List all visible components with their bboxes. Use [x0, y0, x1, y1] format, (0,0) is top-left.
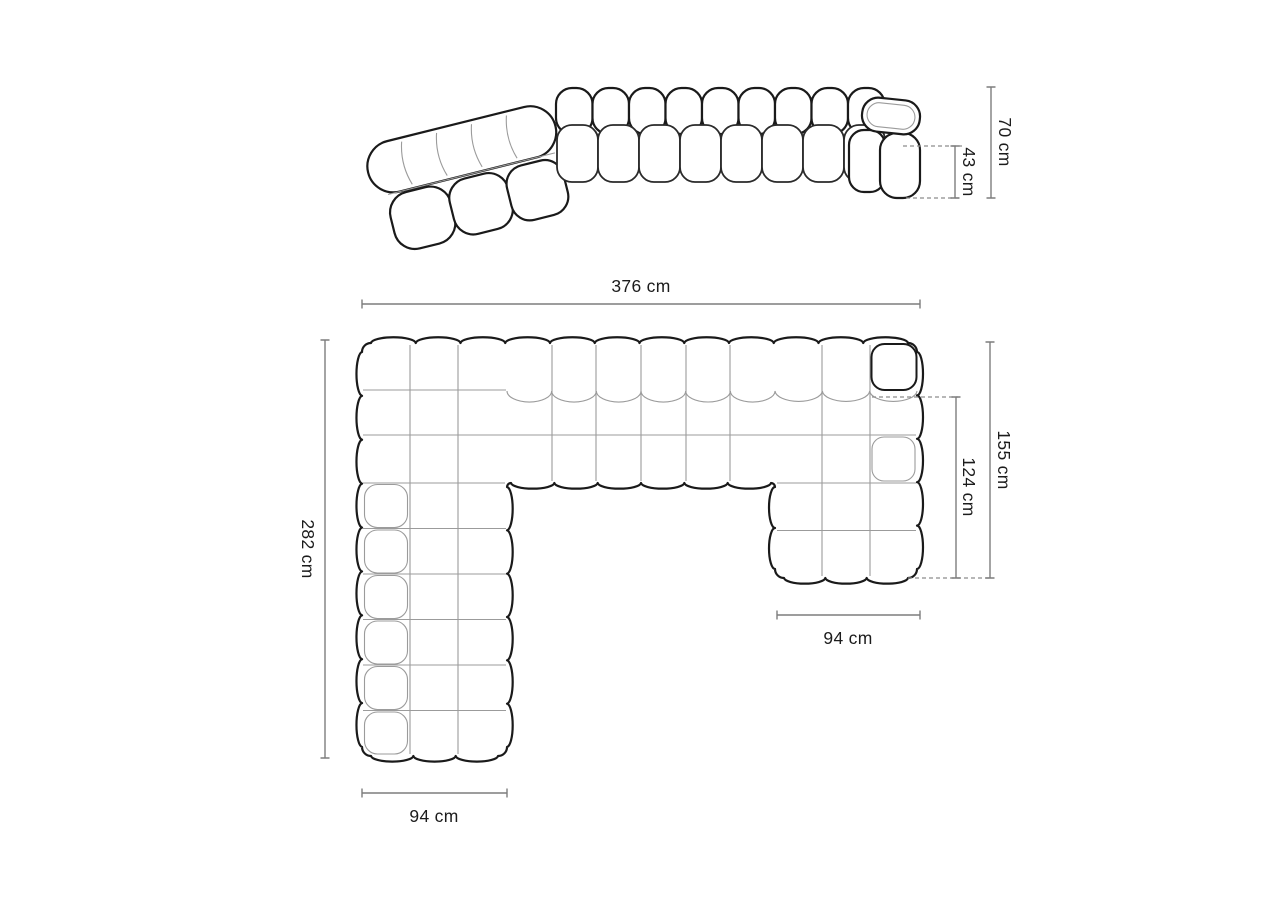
right-side-depth-label: 155 cm	[994, 430, 1014, 489]
dim-seat-height: 43 cm	[951, 146, 980, 198]
perspective-left-wing	[362, 101, 576, 256]
dimension-diagram: 43 cm 70 cm 376	[0, 0, 1280, 905]
right-chaise-width-label: 94 cm	[823, 628, 872, 648]
left-chaise-width-label: 94 cm	[409, 806, 458, 826]
total-depth-label: 282 cm	[298, 519, 318, 578]
plan-view: 376 cm 282 cm 124 cm 155 cm 94 cm 94 cm	[298, 276, 1014, 826]
perspective-view: 43 cm 70 cm	[362, 87, 1015, 256]
dim-total-width: 376 cm	[362, 276, 920, 309]
total-height-label: 70 cm	[995, 117, 1015, 166]
total-width-label: 376 cm	[611, 276, 670, 296]
dim-total-depth: 282 cm	[298, 340, 330, 758]
seat-height-label: 43 cm	[959, 147, 979, 196]
chaise-arm-roll	[860, 96, 921, 136]
dim-right-chaise-width: 94 cm	[777, 611, 920, 649]
dim-left-chaise-width: 94 cm	[362, 789, 507, 827]
sofa-dimension-svg: 43 cm 70 cm 376	[0, 0, 1280, 905]
dim-total-height: 70 cm	[987, 87, 1016, 198]
dim-right-side-depth: 155 cm	[986, 342, 1015, 578]
dim-right-chaise-depth: 124 cm	[952, 397, 980, 578]
chaise-cushion	[880, 133, 920, 198]
right-chaise-depth-label: 124 cm	[959, 457, 979, 516]
